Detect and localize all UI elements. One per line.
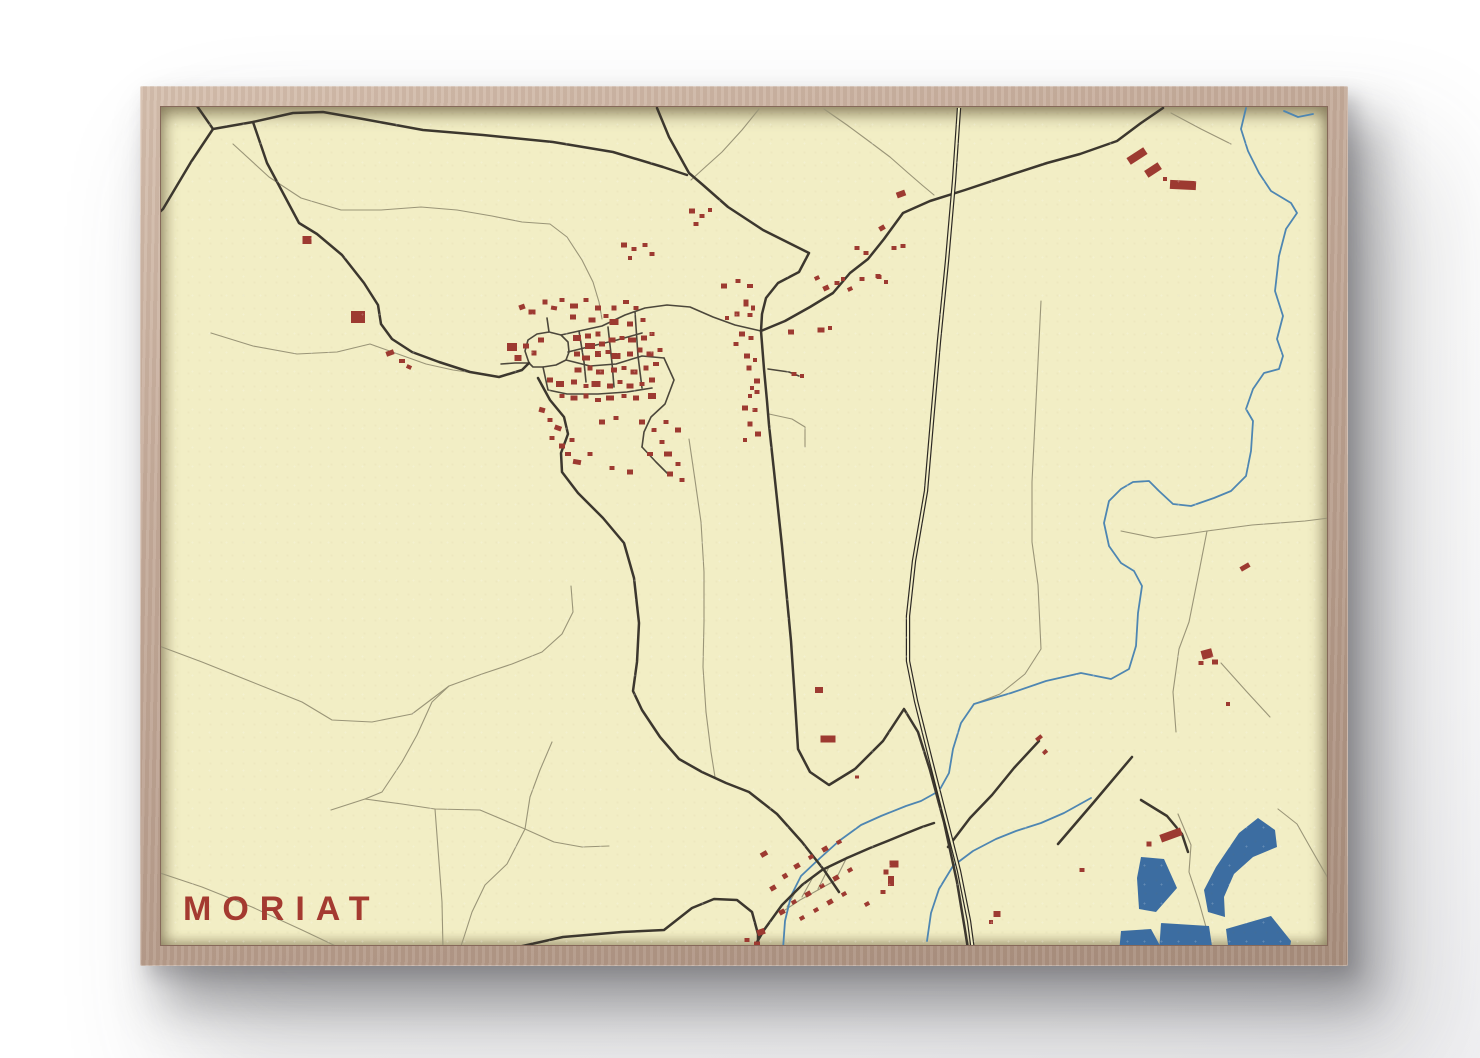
building-footprint	[800, 374, 804, 378]
building-footprint	[406, 364, 412, 370]
building-footprint	[650, 332, 655, 336]
building-footprint	[799, 915, 805, 921]
building-footprint	[708, 208, 712, 212]
building-footprint	[792, 372, 797, 376]
building-footprint	[639, 420, 645, 425]
field-path-line	[211, 333, 481, 374]
building-footprint	[351, 311, 365, 323]
field-path-line	[1171, 113, 1231, 144]
building-footprint	[819, 883, 825, 889]
building-footprint	[1212, 660, 1218, 665]
building-footprint	[721, 284, 727, 289]
building-footprint	[841, 891, 847, 897]
roads-layer	[161, 107, 1188, 945]
railway	[908, 108, 973, 945]
field-paths-layer	[161, 109, 1327, 945]
building-footprint	[725, 316, 729, 320]
building-footprint	[584, 298, 589, 302]
building-footprint	[507, 343, 517, 351]
building-footprint	[818, 328, 825, 333]
building-footprint	[664, 452, 672, 457]
building-footprint	[689, 209, 695, 214]
field-path-line	[689, 439, 715, 777]
building-footprint	[641, 336, 647, 341]
building-footprint	[584, 394, 589, 399]
building-footprint	[532, 351, 537, 356]
building-footprint	[634, 306, 639, 310]
building-footprint	[1199, 661, 1204, 665]
road-line	[538, 378, 839, 892]
field-path-line	[1121, 518, 1327, 538]
building-footprint	[1170, 180, 1196, 190]
building-footprint	[648, 393, 656, 399]
building-footprint	[878, 224, 886, 231]
building-footprint	[622, 366, 627, 370]
building-footprint	[1080, 868, 1085, 872]
building-footprint	[618, 380, 623, 384]
building-footprint	[744, 354, 750, 359]
building-footprint	[612, 353, 621, 359]
building-footprint	[570, 304, 578, 309]
building-footprint	[1147, 842, 1152, 847]
building-footprint	[515, 355, 522, 361]
building-footprint	[643, 243, 648, 247]
building-footprint	[647, 352, 654, 357]
building-footprint	[736, 279, 741, 283]
building-footprint	[627, 322, 633, 327]
lakes-layer	[1119, 818, 1291, 945]
building-footprint	[884, 870, 889, 875]
building-footprint	[660, 440, 665, 444]
building-footprint	[745, 938, 750, 942]
building-footprint	[399, 359, 405, 363]
building-footprint	[847, 867, 853, 873]
building-footprint	[1163, 177, 1167, 181]
building-footprint	[585, 334, 591, 339]
building-footprint	[628, 256, 632, 260]
road-line	[753, 823, 934, 945]
building-footprint	[782, 873, 789, 880]
building-footprint	[734, 342, 739, 346]
building-footprint	[585, 343, 595, 349]
building-footprint	[575, 368, 582, 373]
building-footprint	[612, 306, 617, 311]
building-footprint	[595, 306, 601, 311]
building-footprint	[523, 344, 529, 349]
building-footprint	[813, 907, 819, 913]
building-footprint	[592, 381, 601, 387]
field-path-line	[435, 809, 443, 945]
field-path-line	[1178, 814, 1206, 927]
building-footprint	[551, 306, 558, 311]
building-footprint	[744, 300, 749, 307]
building-footprint	[788, 330, 794, 335]
building-footprint	[614, 416, 619, 420]
building-footprint	[826, 898, 834, 905]
building-footprint	[644, 366, 649, 371]
building-footprint	[638, 348, 643, 353]
building-footprint	[640, 382, 645, 386]
building-footprint	[884, 280, 888, 284]
road-line	[161, 129, 213, 220]
building-footprint	[570, 438, 575, 442]
building-footprint	[538, 407, 545, 413]
building-footprint	[560, 394, 565, 398]
building-footprint	[550, 436, 555, 440]
building-footprint	[667, 472, 673, 477]
field-path-line	[525, 742, 552, 829]
building-footprint	[675, 428, 681, 433]
lake-polygon	[1226, 916, 1291, 945]
building-footprint	[518, 304, 525, 311]
building-footprint	[627, 352, 633, 357]
building-footprint	[680, 478, 685, 482]
building-footprint	[573, 335, 581, 341]
field-path-line	[824, 109, 934, 195]
field-path-line	[233, 144, 602, 319]
building-footprint	[596, 370, 604, 375]
building-footprint	[573, 459, 582, 465]
building-footprint	[611, 368, 617, 373]
lake-polygon	[1119, 929, 1164, 945]
building-footprint	[747, 366, 752, 371]
road-line	[1058, 757, 1132, 844]
building-footprint	[652, 428, 657, 432]
lake-polygon	[1159, 923, 1213, 945]
building-footprint	[700, 214, 705, 218]
building-footprint	[1226, 702, 1230, 706]
building-footprint	[814, 275, 820, 281]
building-footprint	[641, 318, 646, 322]
building-footprint	[743, 438, 747, 442]
field-path-line	[974, 301, 1041, 704]
building-footprint	[881, 890, 886, 894]
stream-line	[927, 798, 1091, 941]
street-line	[525, 332, 569, 367]
building-footprint	[828, 326, 832, 330]
building-footprint	[989, 920, 993, 924]
building-footprint	[754, 379, 760, 384]
building-footprint	[631, 370, 638, 375]
building-footprint	[623, 300, 629, 304]
building-footprint	[588, 452, 593, 456]
building-footprint	[892, 246, 897, 250]
field-path-line	[1179, 531, 1207, 649]
field-path-line	[1173, 649, 1179, 732]
building-footprint	[649, 378, 655, 383]
road-line	[761, 108, 1163, 331]
building-footprint	[565, 452, 571, 456]
building-footprint	[596, 332, 601, 337]
road-line	[948, 741, 1039, 847]
building-footprint	[749, 336, 754, 340]
building-footprint	[647, 452, 653, 456]
building-footprint	[755, 432, 761, 437]
building-footprint	[864, 251, 869, 255]
road-line	[197, 107, 687, 175]
building-footprint	[560, 298, 565, 302]
building-footprint	[896, 190, 907, 199]
railway-casing	[908, 108, 973, 945]
building-footprint	[994, 911, 1001, 917]
building-footprint	[610, 319, 619, 325]
building-footprint	[556, 381, 564, 387]
field-path-line	[1221, 663, 1270, 717]
building-footprint	[755, 390, 760, 394]
building-footprint	[554, 424, 562, 431]
building-footprint	[748, 394, 752, 398]
building-footprint	[599, 342, 605, 347]
building-footprint	[815, 687, 823, 693]
building-footprint	[750, 386, 754, 390]
building-footprint	[574, 352, 580, 357]
building-footprint	[664, 420, 669, 424]
building-footprint	[751, 306, 755, 311]
building-footprint	[653, 362, 659, 366]
building-footprint	[589, 318, 596, 323]
building-footprint	[748, 422, 753, 427]
building-footprint	[739, 332, 745, 337]
building-footprint	[877, 275, 882, 279]
building-footprint	[571, 380, 577, 385]
field-path-line	[161, 586, 573, 722]
building-footprint	[1201, 648, 1214, 660]
building-footprint	[628, 338, 636, 343]
building-footprint	[747, 284, 753, 288]
stream-line	[1284, 111, 1313, 117]
building-footprint	[606, 350, 611, 354]
building-footprint	[548, 418, 553, 422]
building-footprint	[543, 300, 548, 305]
building-footprint	[821, 736, 836, 743]
building-footprint	[841, 277, 845, 281]
building-footprint	[529, 310, 536, 315]
building-footprint	[633, 396, 639, 401]
street-line	[547, 318, 549, 332]
field-path-line	[769, 414, 805, 447]
building-footprint	[760, 850, 769, 858]
street-line	[642, 358, 674, 447]
lake-polygon	[1137, 857, 1177, 912]
building-footprint	[890, 861, 899, 868]
building-footprint	[694, 222, 699, 226]
map-poster: MORIAT	[161, 107, 1327, 945]
building-footprint	[621, 243, 627, 248]
building-footprint	[620, 336, 625, 340]
field-path-line	[1278, 809, 1327, 880]
building-footprint	[888, 876, 894, 886]
building-footprint	[609, 338, 616, 343]
building-footprint	[847, 286, 853, 292]
road-line	[253, 122, 529, 377]
building-footprint	[676, 462, 681, 466]
building-footprint	[627, 384, 634, 389]
building-footprint	[753, 358, 757, 362]
road-line	[509, 899, 758, 945]
street-line	[642, 447, 667, 473]
building-footprint	[835, 281, 840, 285]
lake-polygon	[1204, 818, 1277, 917]
field-path-line	[331, 799, 609, 847]
building-footprint	[791, 899, 797, 905]
building-footprint	[658, 348, 663, 352]
building-footprint	[1159, 827, 1182, 842]
building-footprint	[559, 444, 565, 449]
building-footprint	[571, 396, 578, 401]
picture-frame: MORIAT	[140, 86, 1348, 966]
street-line	[501, 363, 529, 364]
building-footprint	[1042, 749, 1048, 755]
building-footprint	[632, 247, 637, 251]
building-footprint	[855, 776, 859, 779]
building-footprint	[769, 884, 777, 891]
building-footprint	[855, 246, 860, 250]
building-footprint	[860, 277, 865, 281]
building-footprint	[822, 284, 830, 291]
building-footprint	[901, 244, 906, 248]
building-footprint	[570, 315, 576, 320]
building-footprint	[588, 366, 593, 371]
building-footprint	[595, 351, 601, 357]
building-footprint	[1144, 162, 1162, 177]
streets-layer	[501, 305, 799, 473]
field-path-line	[460, 829, 525, 945]
building-footprint	[604, 314, 609, 318]
building-footprint	[610, 466, 615, 470]
building-footprint	[607, 384, 613, 389]
building-footprint	[753, 408, 758, 412]
map-canvas	[161, 107, 1327, 945]
field-path-line	[365, 686, 449, 799]
building-footprint	[606, 396, 614, 401]
building-footprint	[622, 394, 627, 398]
building-footprint	[303, 236, 312, 244]
building-footprint	[595, 398, 601, 402]
building-footprint	[864, 901, 870, 907]
streams-layer	[783, 108, 1313, 945]
building-footprint	[599, 420, 605, 425]
building-footprint	[754, 942, 760, 946]
building-footprint	[1126, 147, 1147, 165]
building-footprint	[538, 338, 544, 343]
building-footprint	[627, 470, 633, 475]
building-footprint	[547, 378, 553, 383]
building-footprint	[735, 312, 740, 317]
building-footprint	[582, 356, 590, 361]
building-footprint	[1239, 562, 1250, 571]
building-footprint	[748, 313, 753, 317]
field-path-line	[691, 109, 759, 180]
building-footprint	[832, 874, 840, 881]
building-footprint	[742, 406, 748, 411]
building-footprint	[584, 384, 589, 388]
building-footprint	[650, 252, 655, 256]
building-footprint	[793, 862, 801, 869]
map-title: MORIAT	[183, 890, 381, 929]
stream-line	[783, 108, 1297, 945]
